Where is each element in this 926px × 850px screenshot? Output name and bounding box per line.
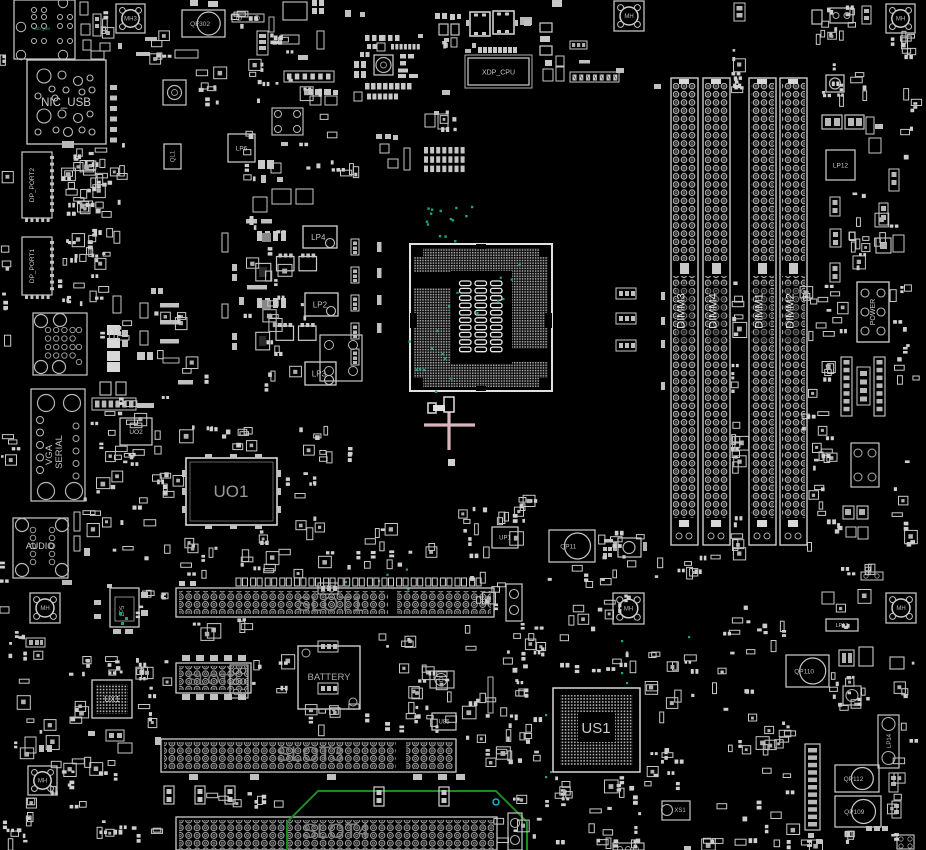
svg-text:NIC_USB: NIC_USB: [41, 97, 91, 109]
svg-text:usb_pwr: usb_pwr: [33, 26, 51, 31]
svg-text:UO1: UO1: [214, 482, 249, 501]
svg-text:MH: MH: [40, 606, 49, 612]
svg-text:POWER: POWER: [870, 299, 877, 325]
svg-text:DP_PORT1: DP_PORT1: [29, 249, 36, 284]
svg-text:SERIAL: SERIAL: [54, 435, 65, 469]
svg-text:LP14: LP14: [887, 733, 893, 748]
svg-text:XDP_CPU: XDP_CPU: [482, 70, 515, 77]
svg-text:QP11: QP11: [560, 544, 577, 551]
svg-text:MH: MH: [624, 607, 633, 613]
svg-text:QF302: QF302: [190, 21, 210, 28]
svg-text:UX1: UX1: [104, 695, 120, 704]
svg-text:LP4: LP4: [311, 233, 326, 242]
svg-text:DP_PORT2: DP_PORT2: [29, 168, 36, 203]
svg-text:QP110: QP110: [794, 669, 814, 676]
svg-text:DIMM3: DIMM3: [676, 293, 688, 328]
svg-text:MH3: MH3: [124, 17, 137, 23]
svg-text:QP109: QP109: [844, 809, 865, 816]
svg-text:DIMM4: DIMM4: [708, 293, 720, 328]
svg-text:MH: MH: [896, 606, 905, 612]
svg-text:SLOT2: SLOT2: [188, 672, 239, 689]
svg-text:MH: MH: [896, 17, 905, 23]
svg-text:MH: MH: [624, 14, 633, 20]
svg-text:UO2: UO2: [129, 429, 143, 436]
svg-text:DIMM2: DIMM2: [785, 293, 797, 328]
svg-text:BATTERY: BATTERY: [308, 672, 352, 683]
svg-text:AUDIO: AUDIO: [26, 541, 55, 551]
svg-text:SLOT4: SLOT4: [303, 820, 370, 843]
svg-text:QP112: QP112: [844, 776, 864, 783]
svg-text:SLOT3: SLOT3: [277, 743, 344, 766]
svg-text:XS1: XS1: [674, 808, 686, 814]
svg-text:US1: US1: [581, 720, 610, 737]
svg-text:LP2: LP2: [313, 301, 328, 310]
svg-text:QL1: QL1: [171, 150, 177, 162]
svg-text:MH: MH: [38, 779, 47, 785]
svg-text:LP12: LP12: [833, 162, 849, 169]
svg-text:LP6: LP6: [236, 145, 248, 152]
svg-text:DIMM1: DIMM1: [754, 293, 766, 328]
svg-text:SLOT1: SLOT1: [297, 593, 364, 616]
